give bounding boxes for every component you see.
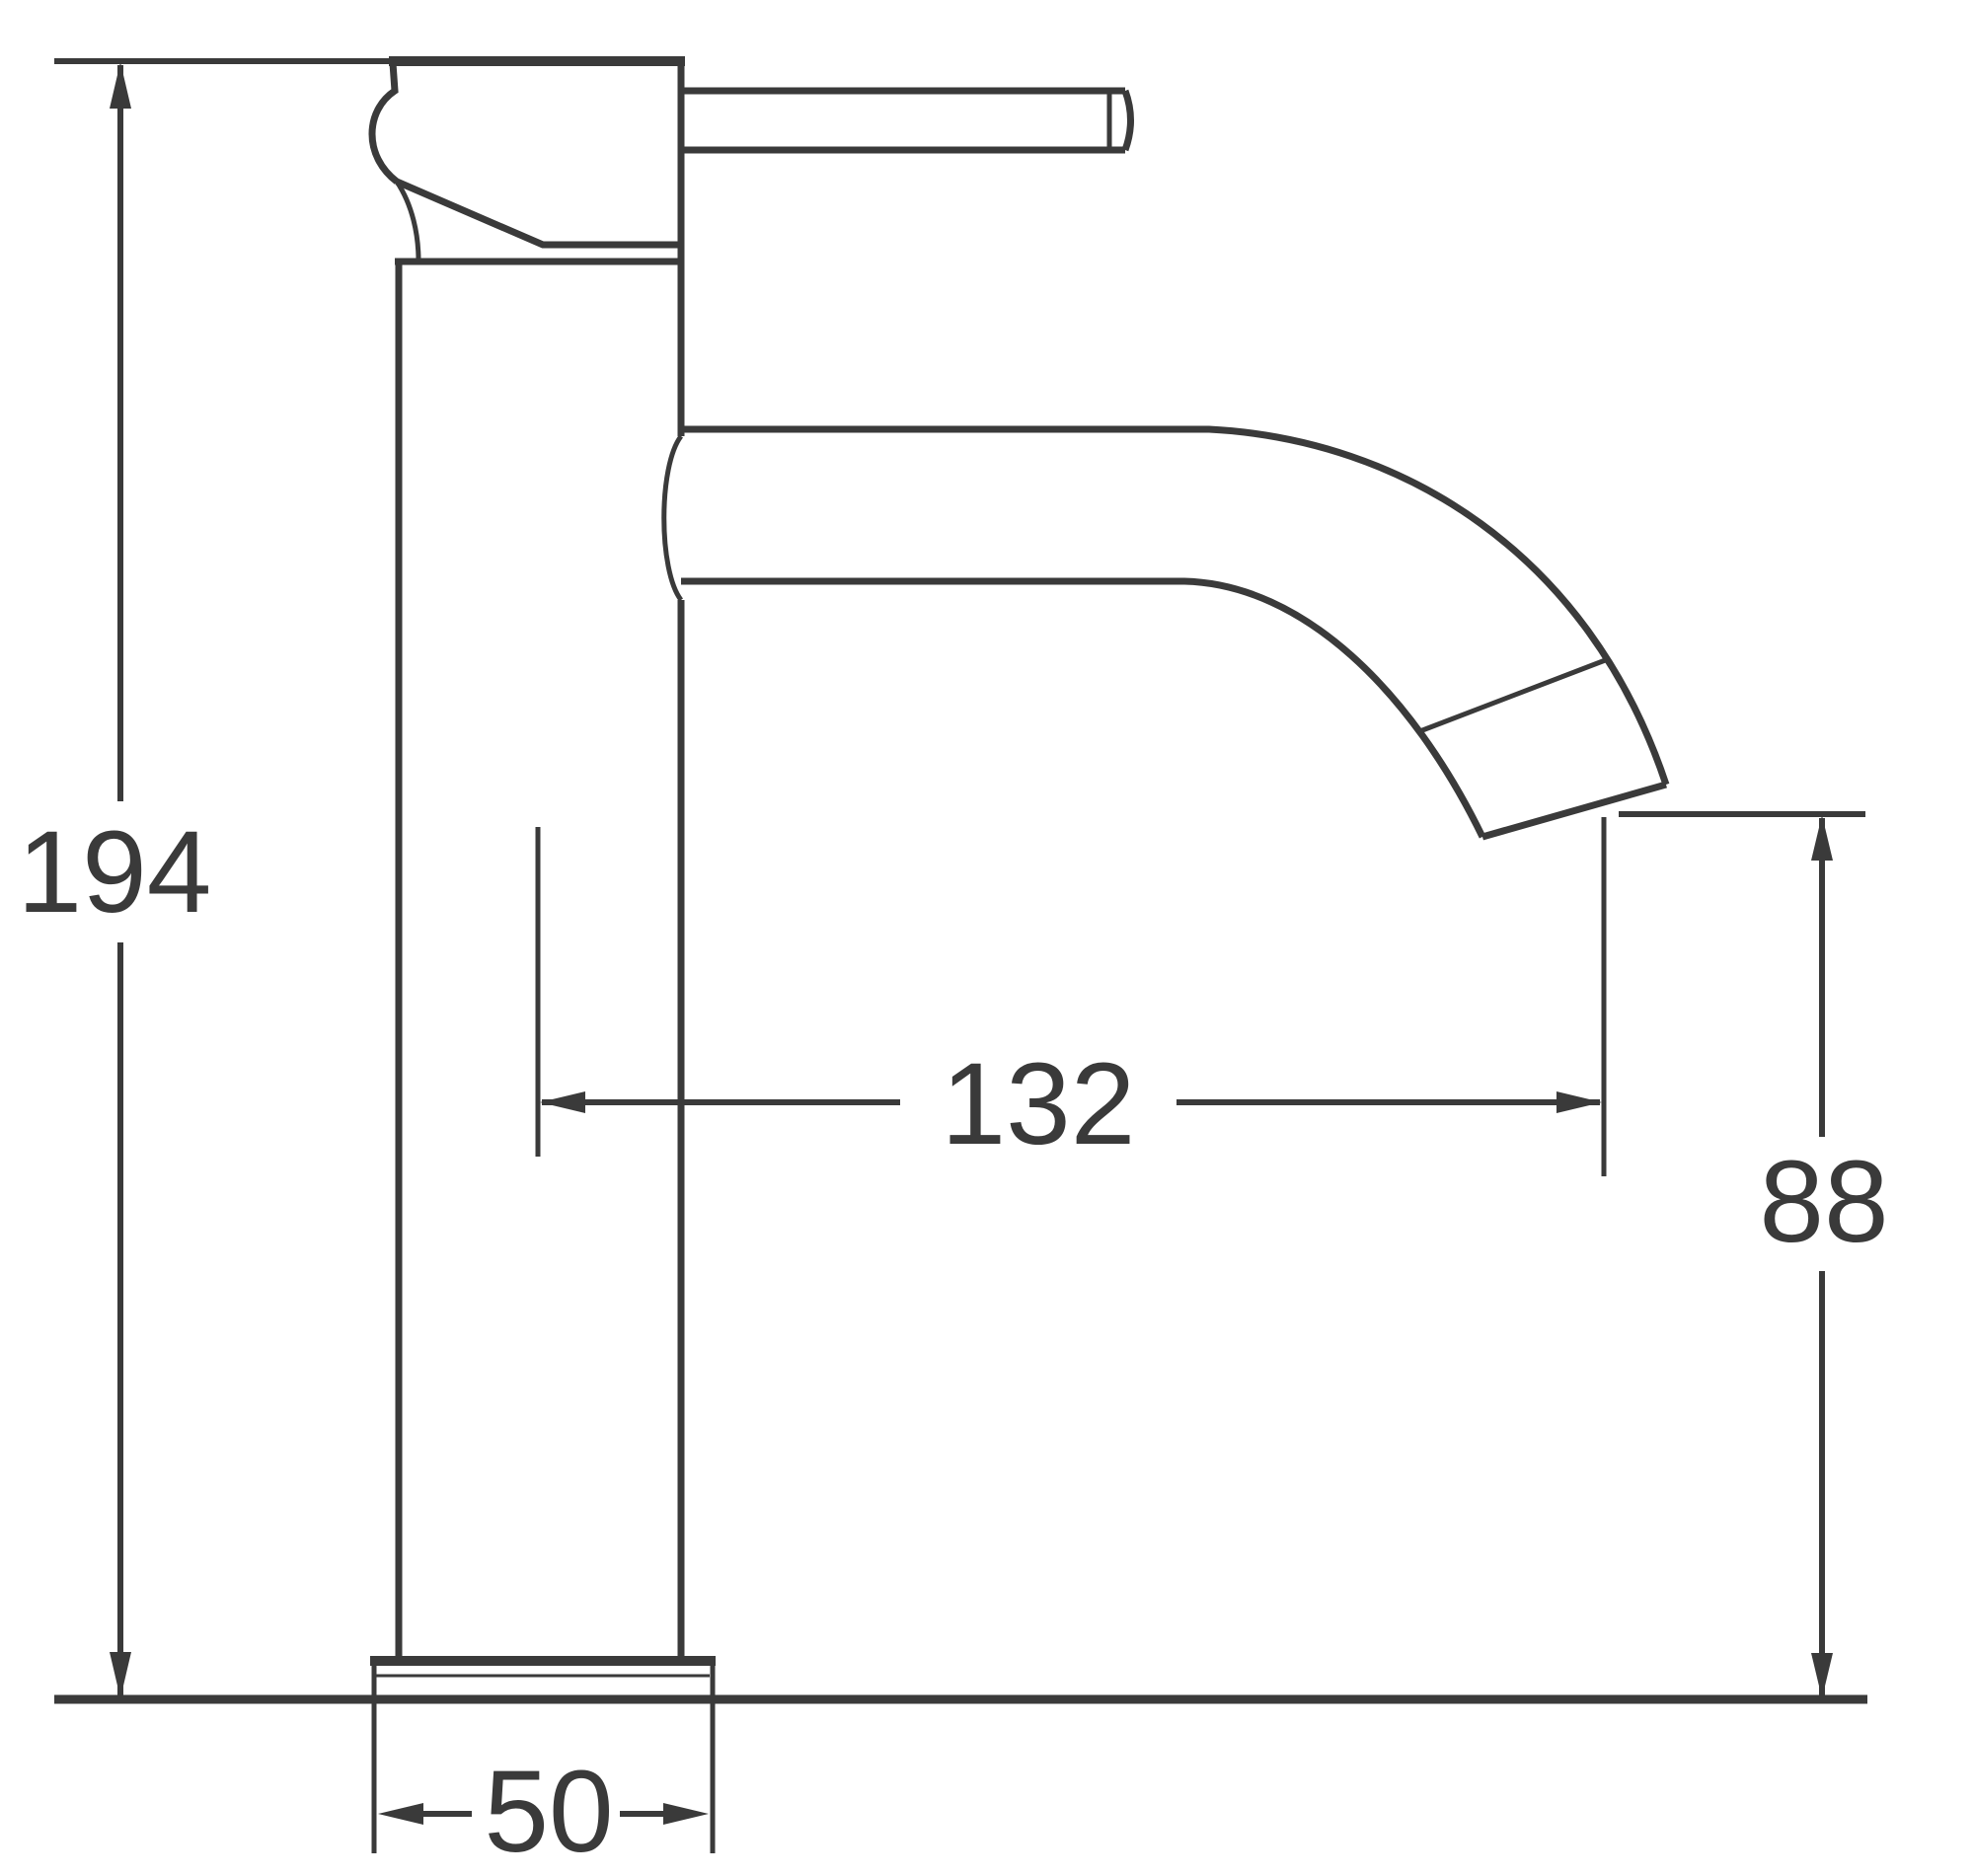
faucet-dimension-drawing: 194 132 88 <box>0 0 1974 1876</box>
base-width-arrow-left <box>378 1803 423 1825</box>
spout-bottom-inner-curve <box>681 581 1482 837</box>
spout-reach-label: 132 <box>942 1039 1136 1169</box>
dimension-overall-height: 194 <box>18 61 391 1698</box>
aerator-ring-line <box>1417 659 1608 732</box>
height-arrow-down <box>110 1652 131 1698</box>
dimension-annotations: 194 132 88 <box>18 61 1889 1876</box>
dimension-spout-outlet-height: 88 <box>1619 814 1889 1698</box>
outlet-height-arrow-down <box>1811 1653 1833 1698</box>
spout-top-outer-curve <box>681 429 1666 785</box>
reach-arrow-left <box>540 1091 585 1113</box>
handle-base-diagonal-edge <box>397 182 681 245</box>
dimension-spout-reach: 132 <box>538 817 1604 1176</box>
faucet-head <box>372 61 685 436</box>
faucet-outline <box>370 61 1666 1853</box>
spout-outlet-face <box>1482 785 1666 837</box>
height-arrow-up <box>110 62 131 109</box>
overall-height-label: 194 <box>18 807 212 938</box>
outlet-height-arrow-up <box>1811 815 1833 861</box>
dimension-base-width: 50 <box>378 1747 709 1876</box>
faucet-spout <box>681 429 1666 837</box>
base-width-label: 50 <box>484 1747 613 1876</box>
reach-arrow-right <box>1556 1091 1602 1113</box>
lever-end-cap <box>1125 91 1131 150</box>
spout-root-fillet <box>664 436 681 600</box>
base-width-arrow-right <box>663 1803 709 1825</box>
spout-outlet-height-label: 88 <box>1759 1137 1888 1267</box>
technical-drawing-canvas: 194 132 88 <box>0 0 1974 1876</box>
faucet-lever <box>681 91 1131 150</box>
head-left-lower-curve <box>397 182 418 261</box>
head-left-edge-cap-bump <box>372 63 397 182</box>
